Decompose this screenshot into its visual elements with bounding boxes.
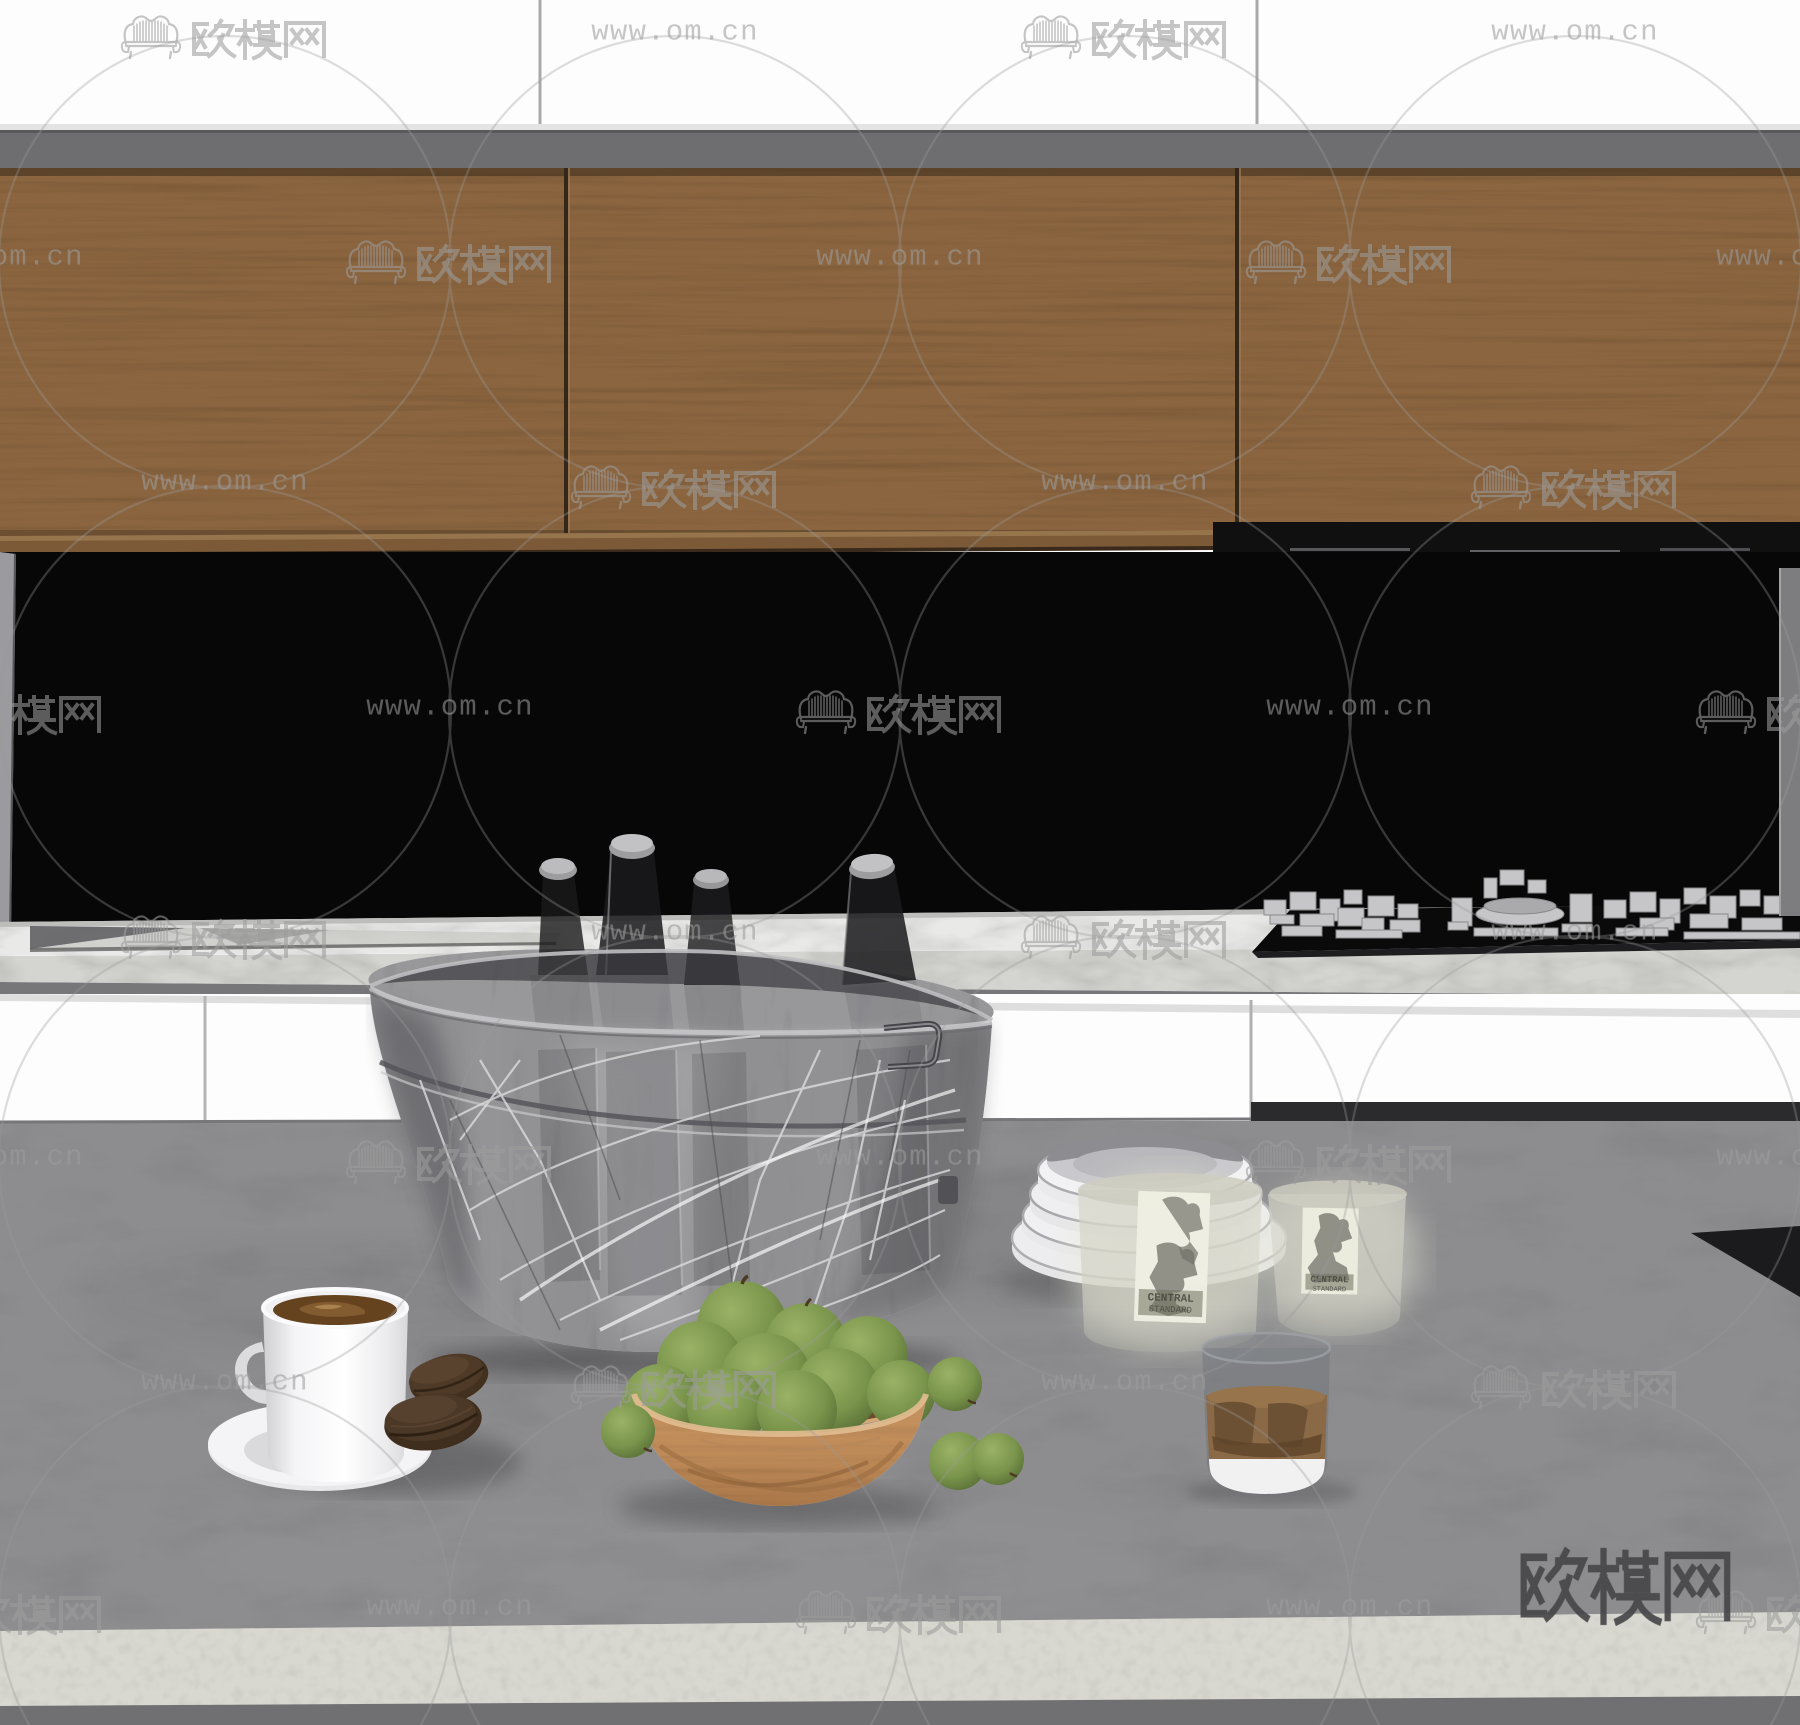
svg-text:www.om.cn: www.om.cn bbox=[141, 1366, 308, 1399]
svg-text:www.om.cn: www.om.cn bbox=[0, 241, 84, 274]
svg-text:www.om.cn: www.om.cn bbox=[141, 466, 308, 499]
svg-text:www.om.cn: www.om.cn bbox=[591, 16, 758, 49]
svg-text:www.om.cn: www.om.cn bbox=[1491, 16, 1658, 49]
svg-text:STANDARD: STANDARD bbox=[1312, 1286, 1346, 1295]
svg-text:www.om.cn: www.om.cn bbox=[1491, 916, 1658, 949]
svg-text:www.om.cn: www.om.cn bbox=[0, 1141, 84, 1174]
svg-text:www.om.cn: www.om.cn bbox=[816, 1141, 983, 1174]
svg-text:www.om.cn: www.om.cn bbox=[816, 241, 983, 274]
svg-text:STANDARD: STANDARD bbox=[1148, 1304, 1192, 1316]
svg-text:www.om.cn: www.om.cn bbox=[1041, 466, 1208, 499]
svg-text:www.om.cn: www.om.cn bbox=[1716, 241, 1800, 274]
svg-text:www.om.cn: www.om.cn bbox=[1266, 691, 1433, 724]
svg-text:www.om.cn: www.om.cn bbox=[366, 691, 533, 724]
svg-text:www.om.cn: www.om.cn bbox=[1041, 1366, 1208, 1399]
svg-text:www.om.cn: www.om.cn bbox=[1266, 1591, 1433, 1624]
svg-text:www.om.cn: www.om.cn bbox=[1716, 1141, 1800, 1174]
svg-text:www.om.cn: www.om.cn bbox=[366, 1591, 533, 1624]
svg-text:www.om.cn: www.om.cn bbox=[591, 916, 758, 949]
